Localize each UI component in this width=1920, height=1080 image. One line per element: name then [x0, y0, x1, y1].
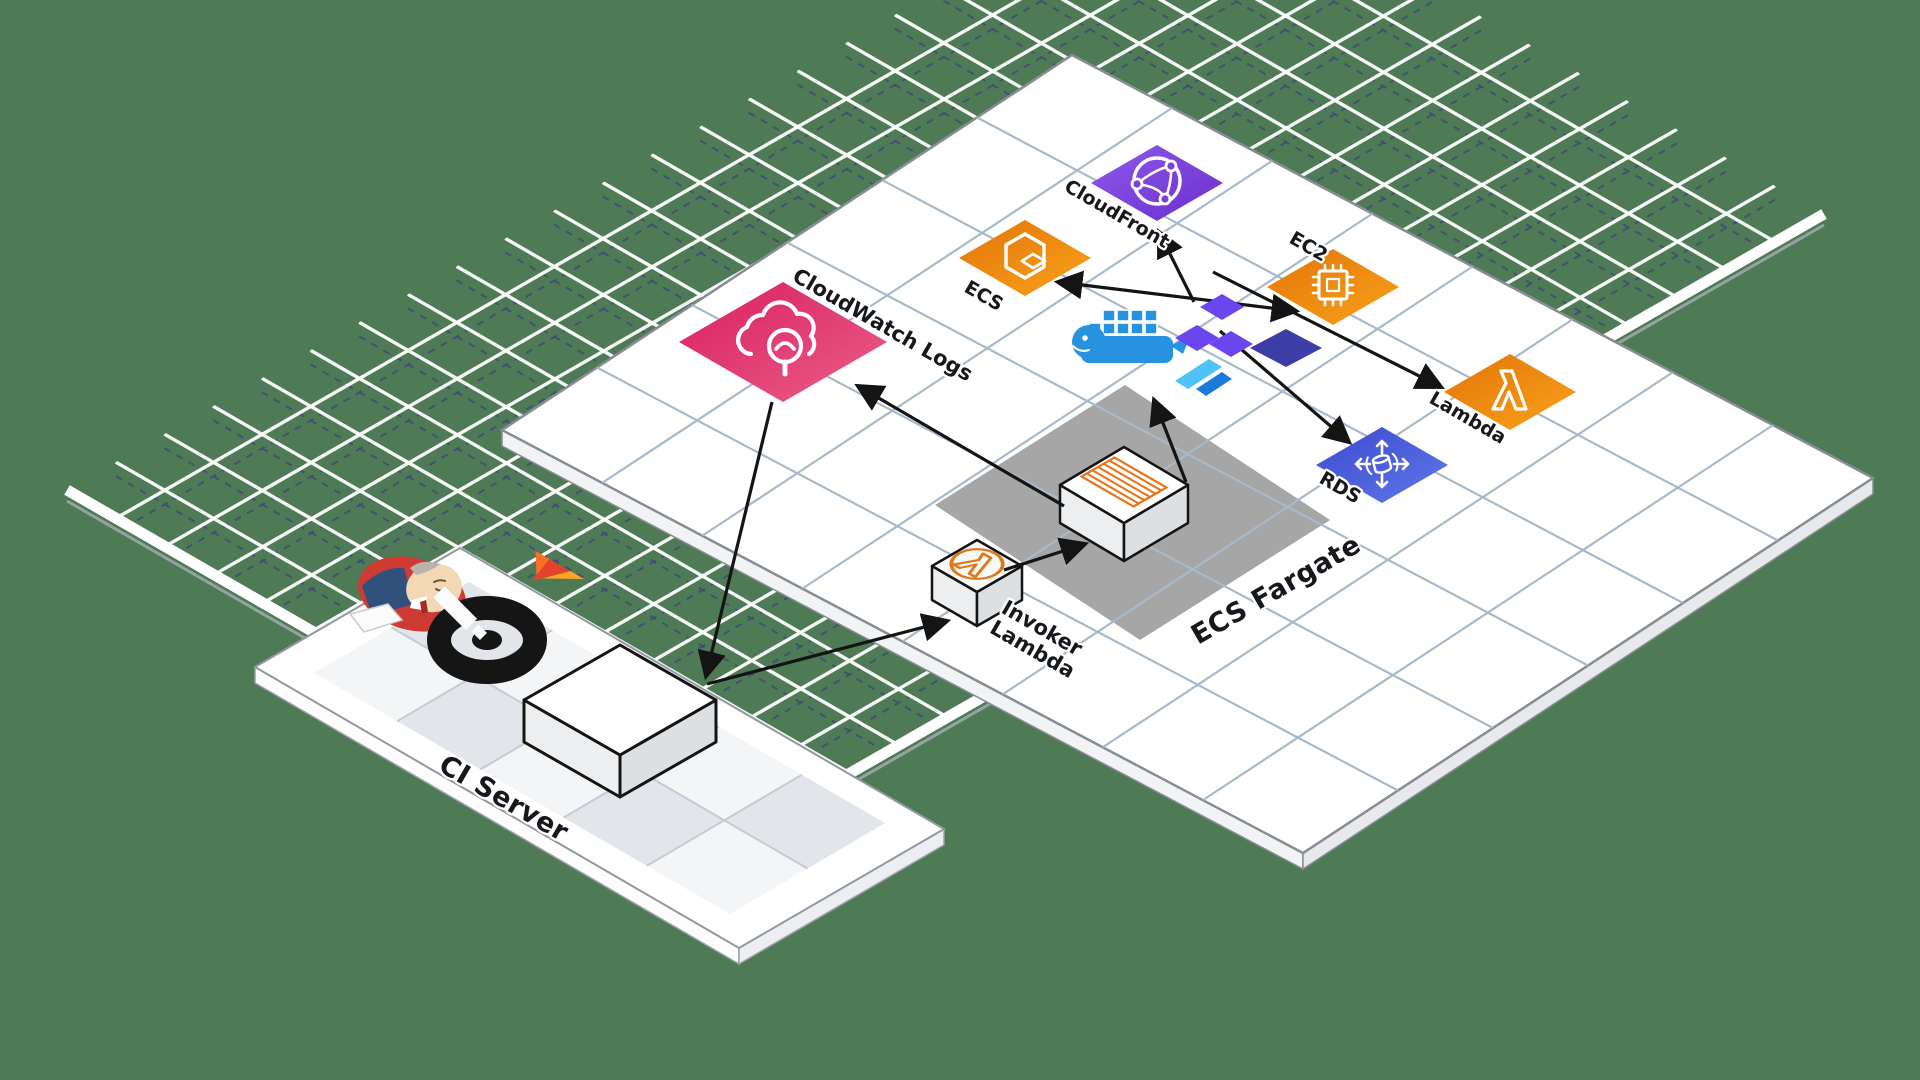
- isometric-architecture-diagram: CloudFront ECS EC2 Lambda RDS CloudWatch…: [0, 0, 1920, 1080]
- diagram-stage: CloudFront ECS EC2 Lambda RDS CloudWatch…: [0, 0, 1920, 1080]
